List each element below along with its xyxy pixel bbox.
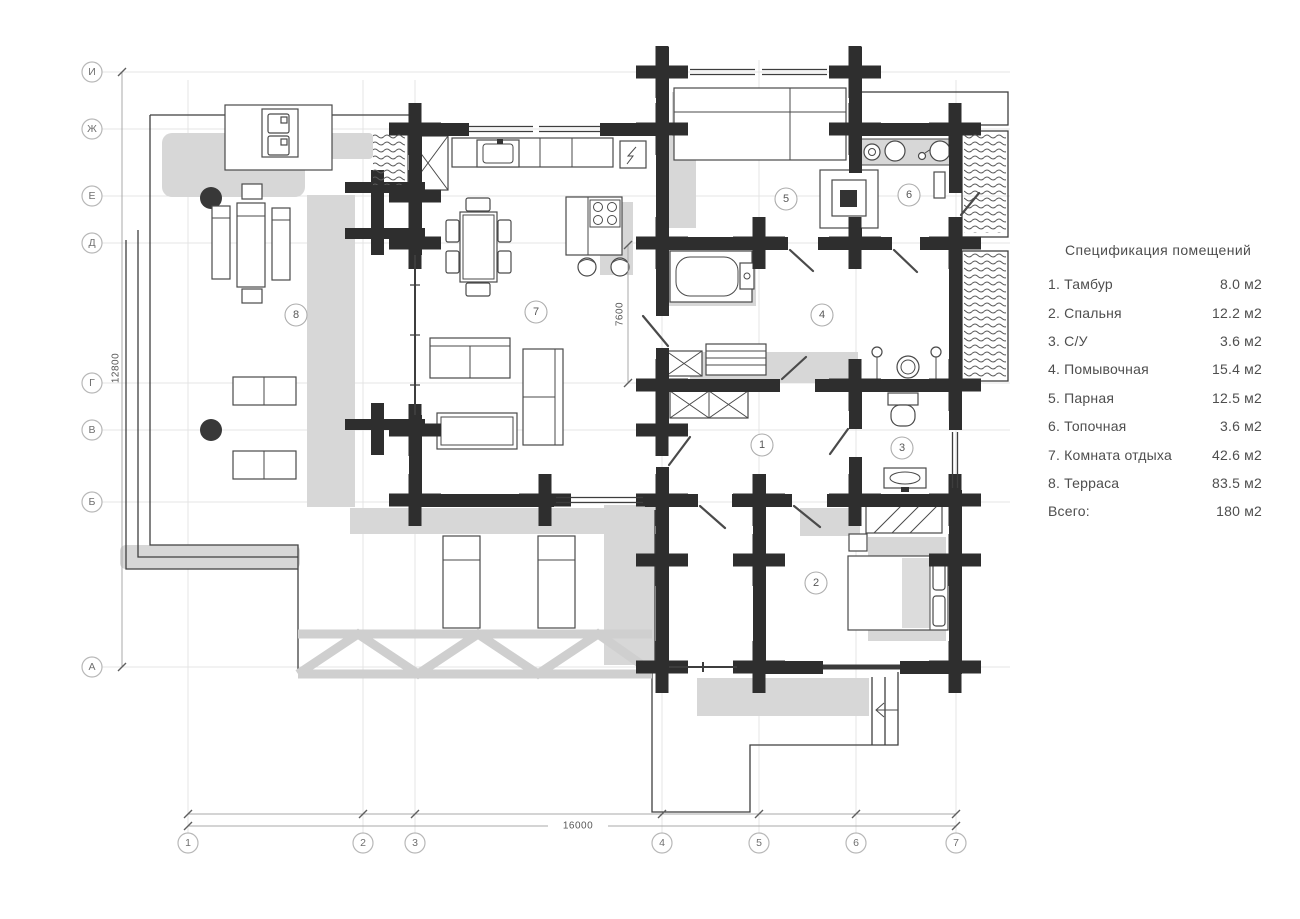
bbq-grill-station [225,105,332,170]
svg-text:И: И [88,66,96,78]
axis-marker: 2 [353,833,373,853]
spec-room-area: 3.6 м2 [1220,418,1262,434]
kitchen-island [566,197,629,276]
svg-text:1: 1 [759,439,765,451]
spec-room-area: 42.6 м2 [1212,447,1262,463]
room-marker-3: 3 [891,437,913,459]
roof-overhang-outline [861,92,1008,125]
spec-row: 2. Спальня 12.2 м2 [1048,298,1262,326]
axis-marker: Г [82,373,102,393]
spec-room-label: 4. Помывочная [1048,361,1149,377]
closet [866,504,942,533]
svg-text:Ж: Ж [87,123,97,135]
dining-table [446,198,511,296]
spec-row: 4. Помывочная 15.4 м2 [1048,355,1262,383]
dimension-left: 12800 [111,353,122,383]
dimension-bottom: 16000 [563,821,593,832]
spec-room-area: 8.0 м2 [1220,276,1262,292]
axis-markers-left: И Ж Е Д Г В Б А [82,62,102,677]
toilet [888,393,918,426]
room-marker-7: 7 [525,301,547,323]
dining-chair [466,198,490,211]
svg-text:3: 3 [412,837,418,849]
spec-room-area: 15.4 м2 [1212,361,1262,377]
stool [666,351,702,376]
bathtub [670,251,754,302]
svg-text:5: 5 [756,837,762,849]
firewood-hatch [373,133,405,185]
axis-marker: Е [82,186,102,206]
spec-row: 7. Комната отдыха 42.6 м2 [1048,440,1262,468]
svg-text:2: 2 [360,837,366,849]
spec-row: 1. Тамбур 8.0 м2 [1048,270,1262,298]
axis-marker: Д [82,233,102,253]
side-table [242,289,262,303]
spec-row: 5. Парная 12.5 м2 [1048,384,1262,412]
svg-text:3: 3 [899,442,905,454]
spec-room-label: 1. Тамбур [1048,276,1113,292]
axis-marker: И [82,62,102,82]
spec-room-label: 8. Терраса [1048,475,1119,491]
sauna-benches [674,88,846,160]
svg-text:Б: Б [89,496,96,508]
spec-total-label: Всего: [1048,503,1090,519]
axis-marker: В [82,420,102,440]
svg-text:Д: Д [88,237,95,249]
bed [848,556,948,630]
electric-panel-icon [620,141,646,168]
room-marker-8: 8 [285,304,307,326]
spec-room-area: 83.5 м2 [1212,475,1262,491]
kitchen-sink [477,139,519,167]
spec-room-label: 3. С/У [1048,333,1088,349]
svg-text:1: 1 [185,837,191,849]
dining-chair [466,283,490,296]
axis-markers-bottom: 1 2 3 4 5 6 7 [178,833,966,853]
room-specification-table: Спецификация помещений 1. Тамбур 8.0 м2 … [1048,242,1262,526]
sun-lounger [212,203,290,287]
side-table [242,184,262,199]
axis-marker: 5 [749,833,769,853]
sun-lounger [443,536,575,628]
spec-row: 6. Топочная 3.6 м2 [1048,412,1262,440]
room-marker-1: 1 [751,434,773,456]
svg-text:А: А [88,661,95,673]
spec-room-label: 5. Парная [1048,390,1114,406]
svg-text:Е: Е [88,190,95,202]
shower-tray [897,356,919,378]
svg-text:5: 5 [783,193,789,205]
svg-text:4: 4 [659,837,665,849]
room-marker-6: 6 [898,184,920,206]
nightstand [849,534,867,551]
bedroom-window [823,665,900,670]
axis-marker: 7 [946,833,966,853]
washing-bench [706,344,766,375]
axis-marker: 6 [846,833,866,853]
spec-total-area: 180 м2 [1216,503,1262,519]
axis-marker: 3 [405,833,425,853]
svg-text:7: 7 [533,306,539,318]
axis-marker: Ж [82,119,102,139]
spec-room-label: 2. Спальня [1048,305,1122,321]
svg-text:Г: Г [89,377,95,389]
step-direction-arrow [876,703,898,717]
svg-text:6: 6 [906,189,912,201]
svg-text:2: 2 [813,577,819,589]
spec-room-area: 12.5 м2 [1212,390,1262,406]
spec-room-label: 6. Топочная [1048,418,1126,434]
svg-text:8: 8 [293,309,299,321]
dimension-interior: 7600 [615,302,626,326]
spec-total-row: Всего: 180 м2 [1048,497,1262,525]
dining-chair [446,251,459,273]
floor-plan-sheet: 12800 16000 7600 И Ж Е Д Г В Б А 1 2 3 4… [0,0,1300,919]
deck-truss [298,634,652,674]
axis-marker: Б [82,492,102,512]
svg-text:7: 7 [953,837,959,849]
room-marker-5: 5 [775,188,797,210]
dining-chair [498,251,511,273]
spec-row: 8. Терраса 83.5 м2 [1048,469,1262,497]
spec-room-area: 3.6 м2 [1220,333,1262,349]
coffee-table [437,413,517,449]
spec-title: Спецификация помещений [1048,242,1262,258]
wardrobe [670,391,748,418]
tree-symbol [200,419,222,441]
svg-text:4: 4 [819,309,825,321]
lounge-seat-pair [233,377,296,479]
room-marker-2: 2 [805,572,827,594]
svg-text:В: В [88,424,95,436]
spec-room-area: 12.2 м2 [1212,305,1262,321]
spec-room-label: 7. Комната отдыха [1048,447,1172,463]
room-marker-4: 4 [811,304,833,326]
washbasin [884,468,926,492]
axis-marker: А [82,657,102,677]
dining-chair [446,220,459,242]
axis-marker: 1 [178,833,198,853]
dining-chair [498,220,511,242]
spec-row: 3. С/У 3.6 м2 [1048,327,1262,355]
svg-text:6: 6 [853,837,859,849]
porch-steps [872,677,885,745]
kitchen-counter [452,138,613,167]
axis-marker: 4 [652,833,672,853]
